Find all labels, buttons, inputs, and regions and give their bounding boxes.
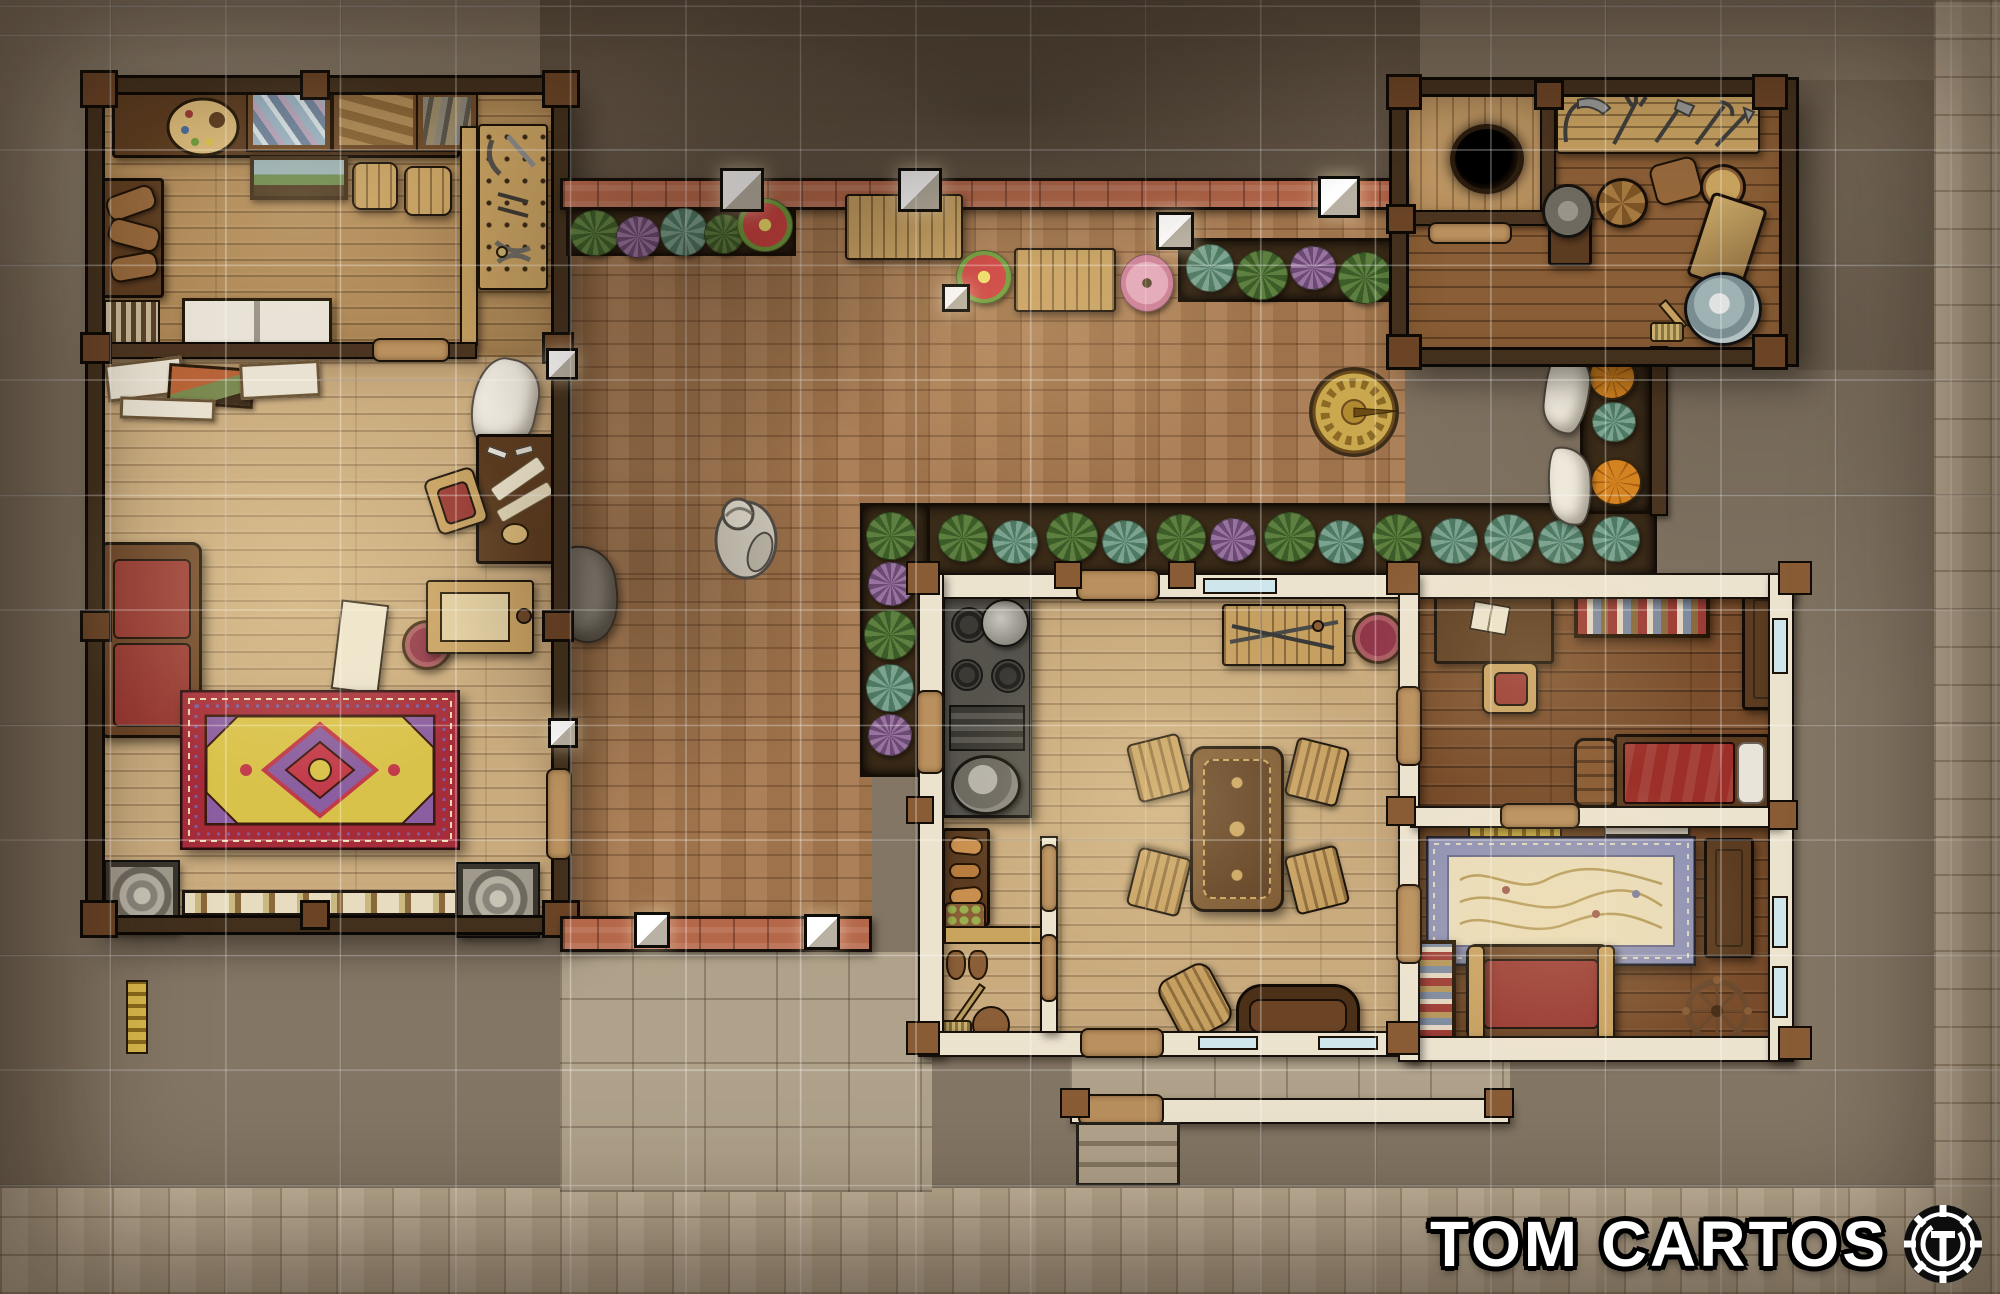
plant-teal	[992, 520, 1038, 564]
boot	[946, 950, 966, 980]
wall-lantern	[546, 348, 578, 380]
wall-post	[1484, 1088, 1514, 1118]
wall-post	[542, 610, 574, 642]
courtyard-north-wall	[560, 178, 1405, 210]
wall-post	[906, 1021, 940, 1055]
stove-vent	[949, 705, 1025, 751]
plant-teal	[1186, 244, 1234, 292]
plant-green	[938, 514, 988, 562]
open-book	[1469, 600, 1512, 636]
wall-post	[906, 796, 934, 824]
bread-loaf	[949, 863, 981, 879]
garden-statue	[710, 486, 780, 582]
tom-cartos-logo	[1902, 1203, 1984, 1285]
wall-lantern	[720, 168, 764, 212]
wall-lantern	[898, 168, 942, 212]
sofa-cushion	[1483, 959, 1599, 1029]
hall-east-door	[546, 768, 572, 860]
shadow-patch-right	[1796, 80, 1936, 370]
plant-teal	[866, 664, 914, 712]
plant-purple	[616, 216, 660, 258]
wall-lantern	[1156, 212, 1194, 250]
window	[1772, 618, 1788, 674]
wall-post	[300, 70, 330, 100]
wall-post	[1534, 80, 1564, 110]
battlemap-canvas: TOM CARTOS	[0, 0, 2000, 1294]
sitting-room-sofa	[1466, 944, 1610, 1040]
plant-teal	[1102, 520, 1148, 564]
study-desk	[1434, 594, 1554, 664]
window	[1318, 1036, 1378, 1050]
wall-lantern	[942, 284, 970, 312]
garden-bench-2	[1014, 248, 1116, 312]
wall-post	[1752, 74, 1788, 110]
pumpkin	[1590, 458, 1642, 506]
kettle	[981, 599, 1029, 647]
wall-post	[1386, 561, 1420, 595]
wing-door-north	[1396, 686, 1422, 766]
storage-chest	[1704, 838, 1754, 958]
wall-lantern	[634, 912, 670, 948]
porch-steps	[1076, 1122, 1180, 1186]
wall-post	[1778, 1026, 1812, 1060]
wall-post	[1060, 1088, 1090, 1118]
chair-cushion	[1494, 672, 1528, 706]
house-north-wall	[918, 573, 1794, 599]
wall-post	[1386, 74, 1422, 110]
boot	[968, 950, 988, 980]
wall-post	[1778, 561, 1812, 595]
plant-purple	[1290, 246, 1336, 290]
bed-pillow	[1737, 742, 1765, 804]
weapons-on-bench	[1222, 604, 1346, 666]
wall-post	[80, 610, 112, 642]
wall-post	[1054, 561, 1082, 589]
window	[1772, 896, 1788, 948]
cabbage	[1430, 518, 1478, 564]
cooking-pot	[951, 755, 1021, 815]
plant-green	[1264, 512, 1316, 562]
plant-purple	[1210, 518, 1256, 562]
wall-post	[1386, 204, 1416, 234]
plant-green	[1372, 514, 1422, 562]
dining-table	[1190, 746, 1284, 912]
wing-door-south	[1396, 884, 1422, 964]
wall-lantern	[804, 914, 840, 950]
barrel	[1574, 738, 1618, 808]
plant-green	[1338, 252, 1392, 304]
wall-post	[1386, 796, 1416, 826]
sofa-arm	[1467, 945, 1485, 1041]
cobble-band-right	[1934, 0, 2000, 1294]
bed-blanket	[1623, 742, 1735, 804]
shadow-patch-top	[540, 0, 1420, 184]
wall-post	[906, 561, 940, 595]
wall-lantern	[548, 718, 578, 748]
cabbage	[1592, 402, 1636, 442]
watermark: TOM CARTOS	[1430, 1198, 1990, 1290]
iron-stove	[942, 594, 1032, 818]
wing-south-wall	[1406, 1036, 1794, 1062]
stove-burner	[991, 659, 1025, 693]
plant-purple	[868, 714, 912, 756]
settee-seat	[1249, 999, 1347, 1033]
shed-walls	[1392, 80, 1796, 364]
bread-loaf	[948, 835, 984, 856]
wall-post	[80, 332, 112, 364]
wall-lantern	[1318, 176, 1360, 218]
maroon-stool	[1352, 612, 1404, 664]
wall-post	[1752, 334, 1788, 370]
plant-teal	[660, 208, 708, 256]
wall-post	[1386, 334, 1422, 370]
wall-post	[1168, 561, 1196, 589]
plant-green	[1236, 250, 1288, 300]
partition-door	[1500, 803, 1580, 829]
wall-post	[300, 900, 330, 930]
bed	[1614, 734, 1770, 812]
sofa-arm	[1597, 945, 1615, 1041]
window	[1772, 966, 1788, 1018]
pantry-door-2	[1040, 934, 1058, 1002]
watermark-text: TOM CARTOS	[1430, 1207, 1888, 1281]
stove-burner	[951, 659, 983, 691]
garden-wall-east	[1650, 346, 1668, 516]
wall-post	[80, 70, 118, 108]
plant-green	[1046, 512, 1098, 562]
wall-post	[1768, 800, 1798, 830]
cabbage	[1592, 516, 1640, 562]
cabbage	[1484, 514, 1534, 562]
window	[1198, 1036, 1258, 1050]
desk-chair	[1482, 662, 1538, 714]
plant-green	[864, 610, 916, 660]
sundial	[1308, 366, 1400, 458]
plant-green	[866, 512, 916, 560]
plant-green	[1156, 514, 1206, 562]
house-south-door	[1080, 1028, 1164, 1058]
house-west-door	[916, 690, 944, 774]
wall-post	[80, 900, 118, 938]
window	[1203, 578, 1277, 594]
house-north-door	[1076, 569, 1160, 601]
cabbage	[1538, 520, 1584, 564]
chest-panel	[1715, 849, 1743, 947]
wall-post	[542, 70, 580, 108]
plant-teal	[1318, 520, 1364, 564]
wall-post	[1386, 1021, 1420, 1055]
table-carving	[1203, 759, 1271, 899]
plant-green	[570, 210, 620, 256]
left-building-walls	[88, 78, 568, 932]
pink-potted-flower	[1120, 254, 1174, 312]
wing-partition-wall	[1410, 806, 1782, 828]
pantry-door-1	[1040, 844, 1058, 912]
gold-trim-piece	[126, 980, 148, 1054]
pantry-counter	[944, 926, 1042, 944]
patio-flagstones	[560, 952, 932, 1192]
